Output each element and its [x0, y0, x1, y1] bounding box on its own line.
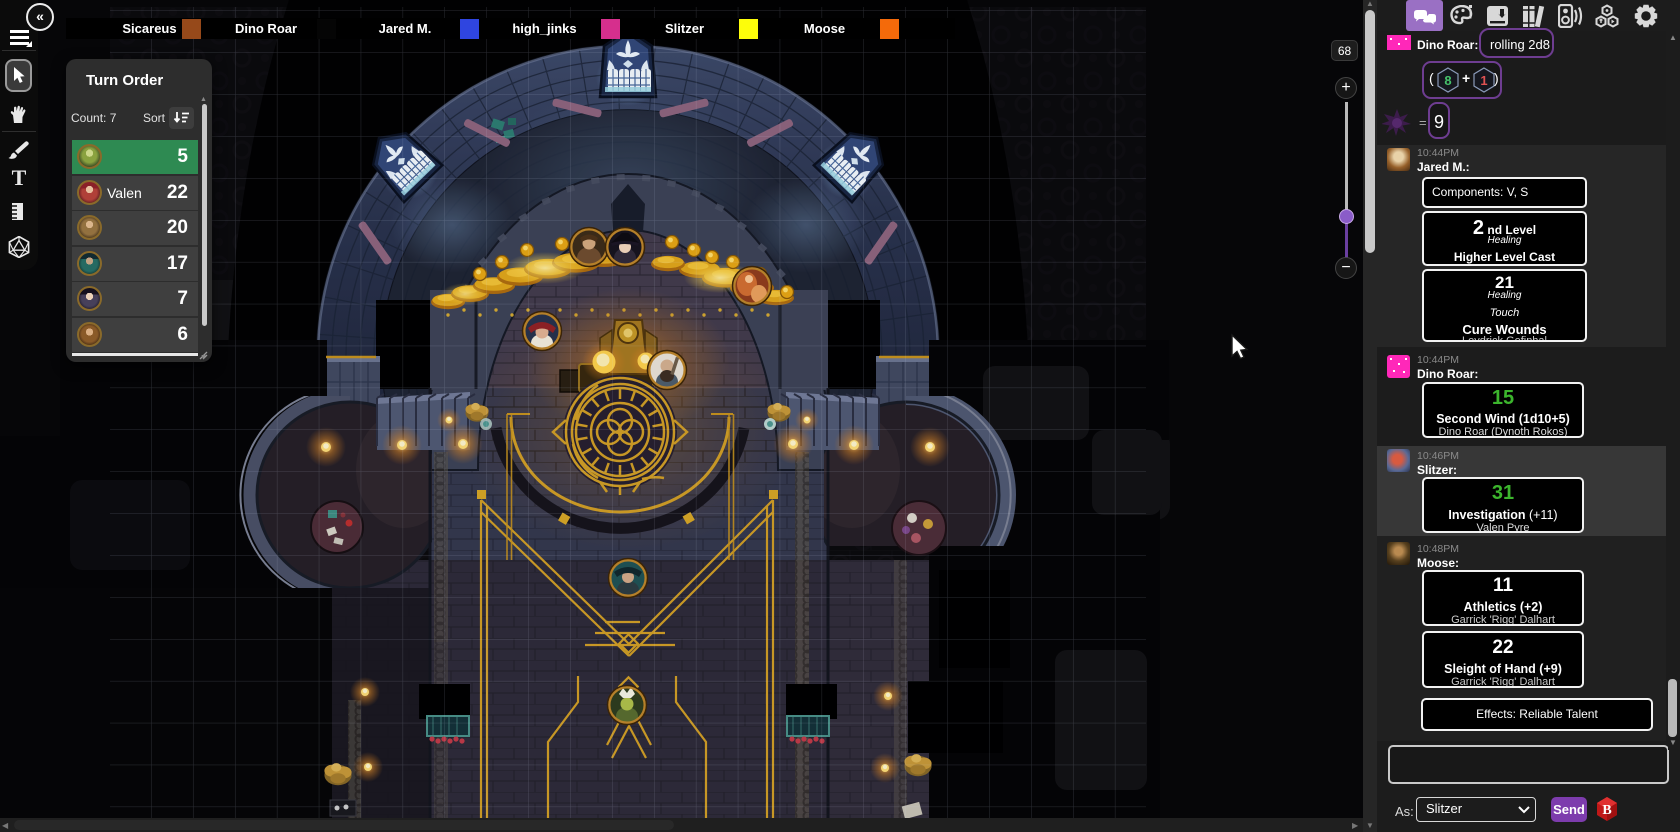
svg-text:8: 8: [1444, 73, 1451, 88]
svg-text:B: B: [1602, 803, 1611, 818]
svg-text:1: 1: [1480, 73, 1487, 88]
